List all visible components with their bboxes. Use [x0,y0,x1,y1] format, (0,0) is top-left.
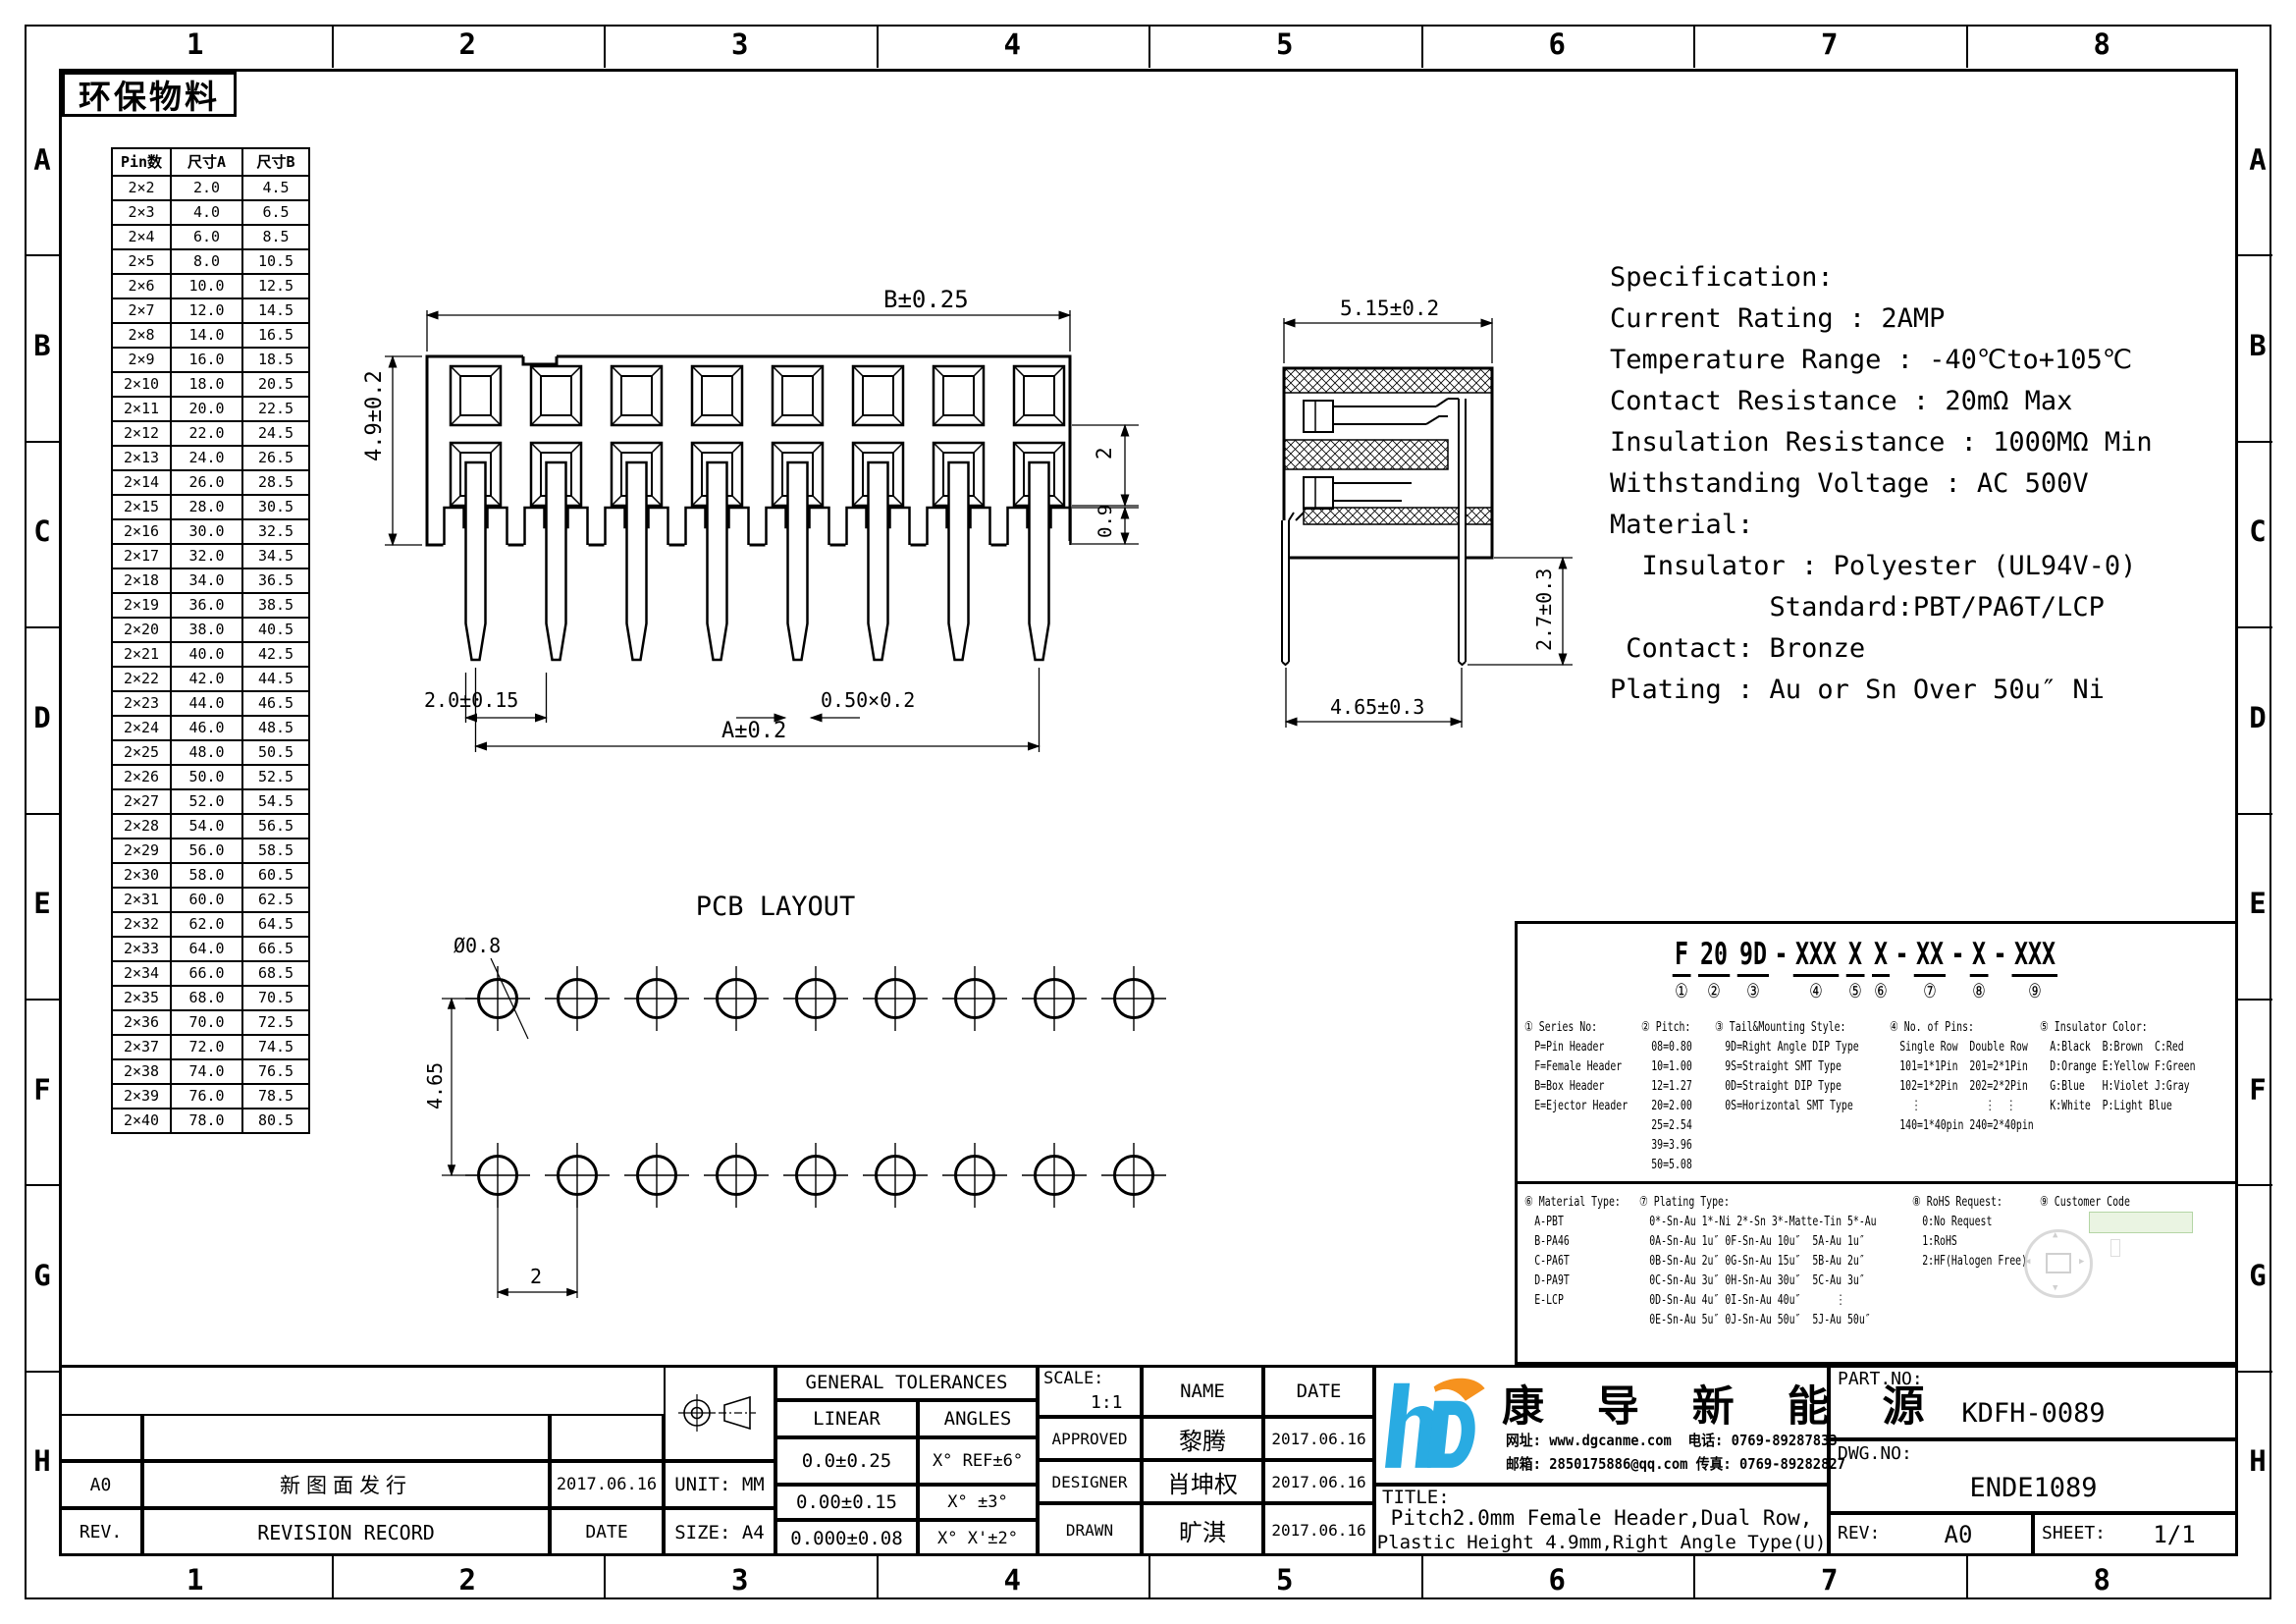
company-contact-line2: 邮箱: 2850175886@qq.com 传真: 0769-89282827 [1506,1453,1845,1474]
ordering-option: E=Ejector Header [1524,1096,1628,1115]
border-col-label: 2 [451,1563,484,1597]
code-position-number: ① [1673,979,1691,1002]
border-col-label: 8 [2085,1563,2118,1597]
ordering-section-title: ② Pitch: [1641,1017,1692,1037]
border-row-label: E [2241,887,2274,920]
ordering-option: 12=1.27 [1641,1076,1692,1096]
spec-line: Temperature Range : -40℃to+105℃ [1610,340,2153,381]
pin-table-cell: 2×27 [112,789,171,814]
stamp-overlay [2089,1212,2193,1233]
pin-table-cell: 2×10 [112,372,171,397]
border-col-label: 5 [1268,27,1302,61]
border-row-label: C [2241,514,2274,548]
border-tick [25,626,59,628]
hatch-band [1284,440,1448,469]
ordering-section-title: ④ No. of Pins: [1890,1017,2034,1037]
part-no-value: KDFH-0089 [1829,1398,2238,1429]
border-row-label: G [2241,1259,2274,1292]
pin-table-row: 2×58.010.5 [112,249,309,274]
pin-table-cell: 2×32 [112,912,171,937]
ordering-option: 10=1.00 [1641,1056,1692,1076]
part-number-code: F①20②9D③-XXX④X⑤X⑥-XX⑦-X⑧-XXX⑨ [1669,935,2061,1002]
pin-table-cell: 14.0 [171,323,242,348]
dim-label: 0.50×0.2 [821,688,915,712]
pan-up-icon: ▲ [2053,1230,2057,1240]
pin-table-cell: 8.0 [171,249,242,274]
pin-table-row: 2×3364.066.5 [112,937,309,961]
ordering-option: 39=3.96 [1641,1135,1692,1155]
ordering-option: 102=1*2Pin 202=2*2Pin [1890,1076,2034,1096]
pin-table-cell: 2×20 [112,618,171,642]
ordering-option: D:Orange E:Yellow F:Green [2040,1056,2196,1076]
border-tick [25,813,59,815]
pin-table-cell: 2×39 [112,1084,171,1109]
pan-down-icon: ▼ [2053,1283,2057,1293]
pin-table-cell: 78.5 [242,1084,309,1109]
pin-table-cell: 44.0 [171,691,242,716]
pin-table-cell: 36.0 [171,593,242,618]
ordering-option: 140=1*40pin 240=2*40pin [1890,1115,2034,1135]
pin-table-cell: 4.0 [171,200,242,225]
specification-text: Specification:Current Rating : 2AMPTempe… [1610,257,2153,711]
border-tick [1966,1556,1968,1599]
socket-pin-array [444,366,1072,660]
border-tick [1966,25,1968,68]
pin-table-cell: 2×29 [112,839,171,863]
signoff-role: DRAWN [1038,1503,1142,1556]
pin-table-header: 尺寸B [242,148,309,176]
border-tick [1693,25,1695,68]
pan-center-icon [2046,1253,2071,1273]
tolerances-angles-header: ANGLES [918,1400,1038,1437]
border-row-label: F [2241,1073,2274,1107]
code-segment: XXX⑨ [2012,935,2058,1002]
pin-table-cell: 2×19 [112,593,171,618]
border-col-label: 2 [451,27,484,61]
pin-table-cell: 62.0 [171,912,242,937]
ordering-option: K:White P:Light Blue [2040,1096,2196,1115]
signoff-name: 肖坤权 [1142,1460,1263,1503]
border-tick [2238,441,2272,443]
pin-table-cell: 2×12 [112,421,171,446]
border-tick [25,999,59,1001]
ordering-option: 1:RoHS [1912,1231,2027,1251]
border-col-label: 4 [995,1563,1029,1597]
spec-line: Insulation Resistance : 1000MΩ Min [1610,422,2153,463]
ordering-option: A-PBT [1524,1212,1621,1231]
pin-table-cell: 2×4 [112,225,171,249]
ordering-section-title: ③ Tail&Mounting Style: [1715,1017,1859,1037]
sheet-label: SHEET: [2042,1523,2106,1543]
border-tick [2238,626,2272,628]
pin-table-cell: 60.5 [242,863,309,888]
revision-header-rev: REV. [59,1508,142,1556]
pin-table-cell: 20.0 [171,397,242,421]
code-separator: - [1951,935,1965,974]
ordering-option: B-PA46 [1524,1231,1621,1251]
ordering-option: C-PA6T [1524,1251,1621,1271]
tolerance-value: X° X'±2° [918,1520,1038,1556]
pin-table-cell: 26.0 [171,470,242,495]
unit-cell: UNIT: MM [664,1461,775,1508]
code-position-number: ② [1698,979,1730,1002]
dim-label: B±0.25 [883,286,969,313]
border-col-label: 5 [1268,1563,1302,1597]
code-segment: XXX④ [1793,935,1840,1002]
pin-table-cell: 16.0 [171,348,242,372]
dim-label: Ø0.8 [454,934,501,957]
pin-table-header-row: Pin数尺寸A尺寸B [112,148,309,176]
ordering-section: ④ No. of Pins:Single Row Double Row101=1… [1890,1017,2034,1135]
pin-table-cell: 2×34 [112,961,171,986]
pin-table-row: 2×2854.056.5 [112,814,309,839]
spec-line: Insulator : Polyester (UL94V-0) [1610,546,2153,587]
ordering-option: 08=0.80 [1641,1037,1692,1056]
pin-table-cell: 2×11 [112,397,171,421]
code-segment: X⑥ [1872,935,1891,1002]
pin-table-cell: 50.0 [171,765,242,789]
code-position-number: ⑦ [1914,979,1946,1002]
border-tick [1693,1556,1695,1599]
dwg-no-value: ENDE1089 [1829,1473,2238,1503]
pin-table-cell: 72.0 [171,1035,242,1059]
pin-table-cell: 56.5 [242,814,309,839]
border-tick [25,1371,59,1373]
pin-table-cell: 4.5 [242,176,309,200]
revision-rev: A0 [59,1461,142,1508]
drawing-title-line1: Pitch2.0mm Female Header,Dual Row, [1374,1506,1829,1530]
code-position-number: ③ [1737,979,1769,1002]
pin-table-row: 2×3568.070.5 [112,986,309,1010]
spec-line: Contact: Bronze [1610,628,2153,670]
ordering-section-title: ⑥ Material Type: [1524,1192,1621,1212]
hd-logo-icon [1384,1373,1494,1475]
border-row-label: A [26,143,59,177]
pin-table-row: 2×3262.064.5 [112,912,309,937]
pin-table-cell: 2×38 [112,1059,171,1084]
pin-table-row: 2×3058.060.5 [112,863,309,888]
ordering-section: ① Series No:P=Pin HeaderF=Female HeaderB… [1524,1017,1628,1115]
pin-table-cell: 34.0 [171,568,242,593]
ordering-option: D-PA9T [1524,1271,1621,1290]
code-position-number: ⑨ [2012,979,2058,1002]
pin-table-cell: 2×9 [112,348,171,372]
pin-table-cell: 76.0 [171,1084,242,1109]
ordering-option: 50=5.08 [1641,1155,1692,1174]
logo-swoosh [1434,1379,1485,1401]
pin-table-cell: 2×2 [112,176,171,200]
pin-table-cell: 68.0 [171,986,242,1010]
border-row-label: A [2241,143,2274,177]
code-segment: X⑧ [1970,935,1989,1002]
spec-line: Specification: [1610,257,2153,298]
pan-left-icon: ◀ [2025,1257,2030,1267]
code-segment: X⑤ [1846,935,1865,1002]
signoff-role: APPROVED [1038,1417,1142,1460]
pin-table-cell: 80.5 [242,1109,309,1133]
pin-table-cell: 70.5 [242,986,309,1010]
rev-label: REV: [1838,1523,1880,1543]
revision-date: 2017.06.16 [550,1461,664,1508]
date-header: DATE [1263,1365,1374,1417]
border-col-label: 7 [1813,27,1846,61]
pin-table-cell: 64.5 [242,912,309,937]
pin-table-cell: 2×33 [112,937,171,961]
pin-table-cell: 52.0 [171,789,242,814]
pin-table-cell: 8.5 [242,225,309,249]
ordering-section-title: ⑦ Plating Type: [1639,1192,1877,1212]
code-position-number: ⑥ [1872,979,1891,1002]
pin-table-cell: 60.0 [171,888,242,912]
ordering-option: 0*-Sn-Au 1*-Ni 2*-Sn 3*-Matte-Tin 5*-Au [1639,1212,1877,1231]
name-header: NAME [1142,1365,1263,1417]
spec-line: Plating : Au or Sn Over 50u″ Ni [1610,670,2153,711]
sheet-value: 1/1 [2120,1521,2228,1548]
spec-line: Current Rating : 2AMP [1610,298,2153,340]
spec-line: Material: [1610,505,2153,546]
pin-table-cell: 6.5 [242,200,309,225]
tolerance-value: X° REF±6° [918,1437,1038,1485]
revision-empty-cell [142,1414,550,1461]
pin-table-cell: 2×28 [112,814,171,839]
revision-empty-cell [59,1414,142,1461]
pin-table-cell: 12.0 [171,298,242,323]
border-tick [2238,254,2272,256]
dim-label: 5.15±0.2 [1340,297,1439,320]
pin-table-cell: 2×13 [112,446,171,470]
pin-table-cell: 2×24 [112,716,171,740]
border-col-label: 4 [995,27,1029,61]
pin-table-cell: 2×5 [112,249,171,274]
ordering-option: ⋮ ⋮ ⋮ [1890,1096,2034,1115]
right-angle-leg-front [1281,513,1304,665]
border-tick [332,1556,334,1599]
logo-d [1427,1401,1478,1468]
pin-table-row: 2×4078.080.5 [112,1109,309,1133]
border-row-label: B [2241,329,2274,362]
right-angle-leg-back [1448,399,1467,665]
border-col-label: 7 [1813,1563,1846,1597]
border-tick [2238,1371,2272,1373]
pin-table-row: 2×46.08.5 [112,225,309,249]
ordering-section: ⑥ Material Type:A-PBTB-PA46C-PA6TD-PA9TE… [1524,1192,1621,1310]
pin-table-cell: 10.5 [242,249,309,274]
ordering-section-title: ① Series No: [1524,1017,1628,1037]
pin-table-cell: 64.0 [171,937,242,961]
scale-label: SCALE: [1043,1369,1103,1388]
border-col-label: 8 [2085,27,2118,61]
ordering-option: 9D=Right Angle DIP Type [1715,1037,1859,1056]
pin-table-cell: 2×40 [112,1109,171,1133]
code-separator: - [1896,935,1909,974]
tolerance-value: 0.0±0.25 [775,1437,918,1485]
pin-table-cell: 2×7 [112,298,171,323]
part-no-label: PART.NO: [1838,1369,1923,1389]
tolerance-value: 0.000±0.08 [775,1520,918,1556]
border-tick [1148,1556,1150,1599]
revision-record: 新图面发行 [142,1461,550,1508]
ordering-option: 0D-Sn-Au 4u″ 0I-Sn-Au 40u″ ⋮ [1639,1290,1877,1310]
dim-label: 4.65 [423,1062,447,1110]
dim-label: 2 [1093,447,1116,460]
pin-table-cell: 2×37 [112,1035,171,1059]
pin-table-cell: 2×6 [112,274,171,298]
ordering-section: ⑦ Plating Type:0*-Sn-Au 1*-Ni 2*-Sn 3*-M… [1639,1192,1877,1329]
ordering-option: E-LCP [1524,1290,1621,1310]
rev-value: A0 [1885,1521,2032,1548]
code-separator: - [1774,935,1788,974]
code-segment: XX⑦ [1914,935,1946,1002]
border-row-label: H [2241,1444,2274,1478]
dim-label: 2 [530,1265,542,1288]
ordering-section-title: ⑤ Insulator Color: [2040,1017,2196,1037]
pin-table-cell: 10.0 [171,274,242,298]
projection-angle-icon [666,1367,774,1459]
pin-table-cell: 30.0 [171,519,242,544]
pin-table-cell: 46.0 [171,716,242,740]
ordering-option: 9S=Straight SMT Type [1715,1056,1859,1076]
dim-label: 4.65±0.3 [1330,695,1424,719]
pin-table-cell: 2×18 [112,568,171,593]
pin-table-cell: 2×31 [112,888,171,912]
border-tick [25,441,59,443]
pin-table-cell: 54.0 [171,814,242,839]
pin-table-cell: 2×14 [112,470,171,495]
pin-table-cell: 32.0 [171,544,242,568]
ordering-option: 101=1*1Pin 201=2*1Pin [1890,1056,2034,1076]
revision-header-date: DATE [550,1508,664,1556]
pin-table-cell: 2×23 [112,691,171,716]
dim-label: 0.9 [1095,505,1116,538]
pin-table-cell: 66.5 [242,937,309,961]
pin-table-cell: 70.0 [171,1010,242,1035]
pin-table-cell: 18.0 [171,372,242,397]
dwg-no-label: DWG.NO: [1838,1443,1912,1464]
ordering-option: 0A-Sn-Au 1u″ 0F-Sn-Au 10u″ 5A-Au 1u″ [1639,1231,1877,1251]
pin-table-row: 2×3976.078.5 [112,1084,309,1109]
pin-table-row: 2×3772.074.5 [112,1035,309,1059]
pin-table-row: 2×3160.062.5 [112,888,309,912]
ordering-option: 20=2.00 [1641,1096,1692,1115]
dim-label: 2.7±0.3 [1532,568,1556,651]
ordering-option: Single Row Double Row [1890,1037,2034,1056]
border-tick [25,1184,59,1186]
ordering-option: F=Female Header [1524,1056,1628,1076]
code-position-number: ⑤ [1846,979,1865,1002]
dim-label: 4.9±0.2 [362,370,387,461]
border-col-label: 6 [1540,1563,1574,1597]
pin-table-cell: 66.0 [171,961,242,986]
tolerances-linear-header: LINEAR [775,1400,918,1437]
pin-table-cell: 76.5 [242,1059,309,1084]
border-row-label: H [26,1444,59,1478]
ordering-section: ⑤ Insulator Color:A:Black B:Brown C:RedD… [2040,1017,2196,1115]
border-tick [604,25,606,68]
dim-label: 2.0±0.15 [424,688,518,712]
ordering-option: 2:HF(Halogen Free) [1912,1251,2027,1271]
signoff-date: 2017.06.16 [1263,1503,1374,1556]
pcb-hole-array [465,966,1166,1208]
pin-table-cell: 6.0 [171,225,242,249]
pin-table-cell: 2×3 [112,200,171,225]
ordering-section-title: ⑨ Customer Code [2040,1192,2130,1212]
revision-empty-cell [550,1414,664,1461]
engineering-drawing-sheet: { "border": { "cols": ["1","2","3","4","… [0,0,2296,1624]
border-col-label: 6 [1540,27,1574,61]
border-tick [2238,999,2272,1001]
pin-table-cell: 56.0 [171,839,242,863]
ordering-section: ③ Tail&Mounting Style:9D=Right Angle DIP… [1715,1017,1859,1115]
border-tick [2238,1184,2272,1186]
pin-table-cell: 42.0 [171,667,242,691]
pan-right-icon: ▶ [2079,1257,2084,1267]
border-row-label: C [26,514,59,548]
scale-cell: SCALE: 1:1 [1038,1365,1142,1417]
ordering-divider [1515,1181,2238,1184]
pin-table-cell: 2×15 [112,495,171,519]
border-col-label: 1 [179,1563,212,1597]
ordering-option: A:Black B:Brown C:Red [2040,1037,2196,1056]
dim-label: A±0.2 [721,719,786,743]
pin-table-cell: 22.0 [171,421,242,446]
spec-line: Standard:PBT/PA6T/LCP [1610,587,2153,628]
ordering-option: 0C-Sn-Au 3u″ 0H-Sn-Au 30u″ 5C-Au 3u″ [1639,1271,1877,1290]
pin-table-cell: 74.5 [242,1035,309,1059]
pin-table-header: Pin数 [112,148,171,176]
pin-table-cell: 58.0 [171,863,242,888]
signoff-role: DESIGNER [1038,1460,1142,1503]
hatch-band [1284,368,1492,393]
code-separator: - [1994,935,2007,974]
pin-table-cell: 2×35 [112,986,171,1010]
pin-table-cell: 74.0 [171,1059,242,1084]
pin-table-row: 2×3874.076.5 [112,1059,309,1084]
pin-table-row: 2×22.04.5 [112,176,309,200]
tolerances-title: GENERAL TOLERANCES [775,1365,1038,1400]
pin-table-cell: 2×25 [112,740,171,765]
pin-table-cell: 2×22 [112,667,171,691]
ordering-option: 0:No Request [1912,1212,2027,1231]
ordering-option: 25=2.54 [1641,1115,1692,1135]
border-tick [604,1556,606,1599]
title-label: TITLE: [1382,1487,1450,1508]
border-row-label: F [26,1073,59,1107]
ordering-section: ② Pitch:08=0.8010=1.0012=1.2720=2.0025=2… [1641,1017,1692,1174]
border-tick [25,254,59,256]
ordering-section: ⑧ RoHS Request:0:No Request1:RoHS2:HF(Ha… [1912,1192,2027,1271]
border-row-label: B [26,329,59,362]
spec-line: Withstanding Voltage : AC 500V [1610,463,2153,505]
pin-table-row: 2×3466.068.5 [112,961,309,986]
front-view-drawing: B±0.25 4.9±0.2 2 0.9 2.0±0.15 0.50×0.2 A… [275,285,1158,795]
pin-table-cell: 40.0 [171,642,242,667]
pin-table-cell: 38.0 [171,618,242,642]
pin-table-cell: 62.5 [242,888,309,912]
pin-table-header: 尺寸A [171,148,242,176]
pcb-layout-drawing: Ø0.8 4.65 2 [422,913,1256,1306]
pin-table-cell: 2×30 [112,863,171,888]
pin-table-cell: 68.5 [242,961,309,986]
tolerance-value: X° ±3° [918,1485,1038,1520]
size-cell: SIZE: A4 [664,1508,775,1556]
border-row-label: G [26,1259,59,1292]
viewer-artifact [2110,1239,2120,1257]
border-col-label: 3 [723,1563,757,1597]
drawing-title-line2: Plastic Height 4.9mm,Right Angle Type(U) [1374,1532,1829,1553]
pin-table-cell: 2×16 [112,519,171,544]
signoff-name: 黎腾 [1142,1417,1263,1460]
border-tick [1421,25,1423,68]
